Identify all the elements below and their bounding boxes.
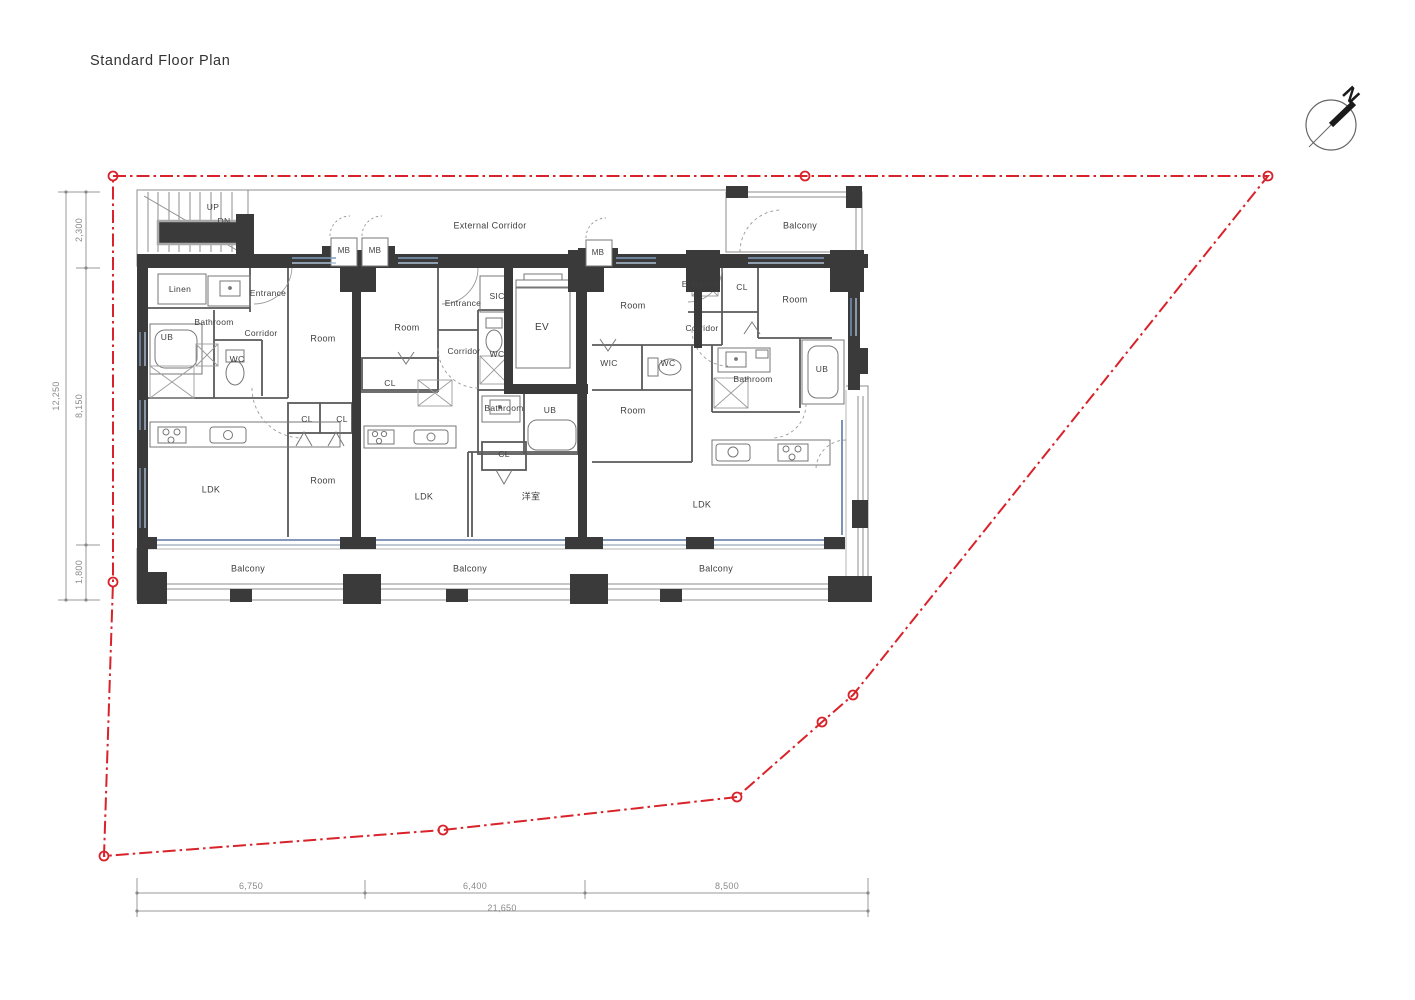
page-title: Standard Floor Plan [90, 53, 230, 69]
floor-plan-drawing [0, 0, 1415, 1000]
dimension-bottom-segment-2: 6,400 [463, 881, 487, 891]
walls [137, 186, 872, 604]
windows [140, 258, 856, 545]
dimension-lines [58, 190, 870, 917]
dimension-bottom-total: 21,650 [487, 903, 516, 913]
dimension-bottom-segment-3: 8,500 [715, 881, 739, 891]
dimension-left-total: 12,250 [51, 381, 61, 410]
dimension-left-segment-1: 2,300 [74, 218, 84, 242]
dimension-bottom-segment-1: 6,750 [239, 881, 263, 891]
floor-plan-page: Standard Floor Plan N UPDNExternal Corri… [0, 0, 1415, 1000]
north-arrow-icon [1306, 100, 1356, 150]
dimension-left-segment-3: 1,800 [74, 560, 84, 584]
dimension-left-segment-2: 8,150 [74, 394, 84, 418]
